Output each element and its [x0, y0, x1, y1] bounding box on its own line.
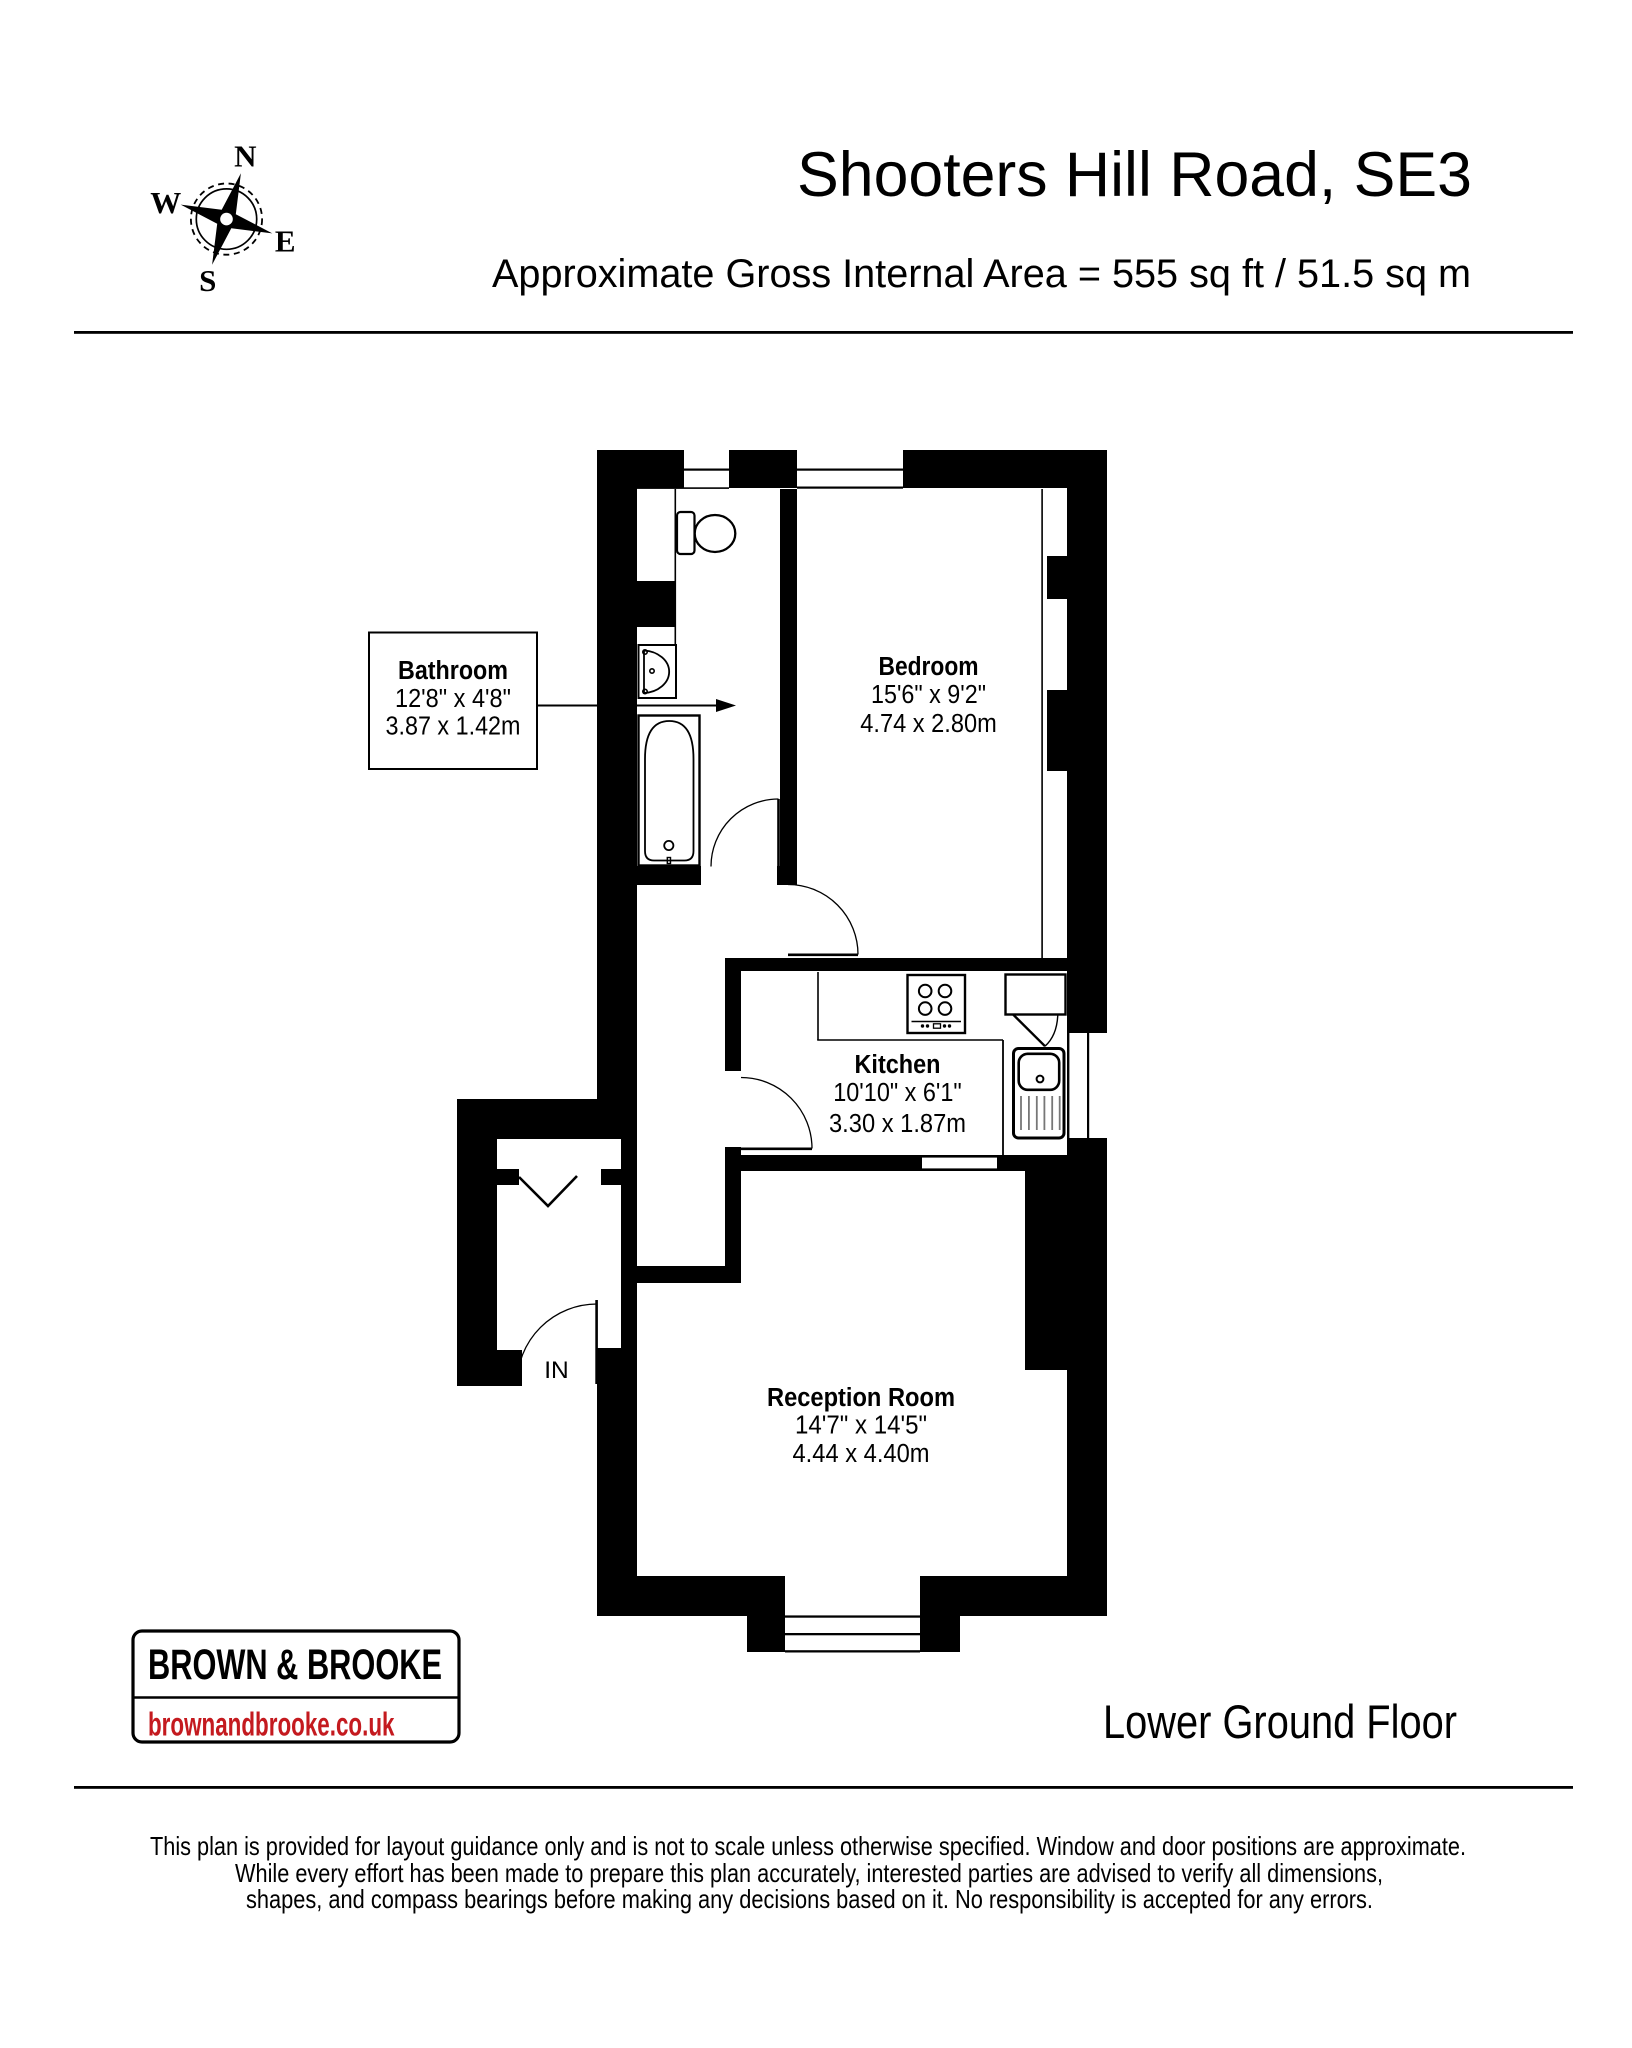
svg-text:Approximate Gross Internal Are: Approximate Gross Internal Area = 555 sq… — [492, 252, 1471, 296]
svg-text:Reception Room: Reception Room — [767, 1384, 955, 1412]
svg-text:brownandbrooke.co.uk: brownandbrooke.co.uk — [148, 1707, 395, 1744]
svg-text:Shooters Hill Road, SE3: Shooters Hill Road, SE3 — [797, 140, 1472, 210]
svg-text:shapes, and compass bearings b: shapes, and compass bearings before maki… — [246, 1884, 1373, 1914]
svg-text:Kitchen: Kitchen — [855, 1051, 941, 1079]
svg-text:4.44 x 4.40m: 4.44 x 4.40m — [793, 1440, 930, 1468]
svg-text:IN: IN — [544, 1357, 569, 1384]
svg-text:Bathroom: Bathroom — [398, 657, 508, 685]
svg-text:12'8" x 4'8": 12'8" x 4'8" — [395, 685, 511, 713]
svg-text:BROWN & BROOKE: BROWN & BROOKE — [148, 1641, 442, 1689]
svg-text:Lower Ground Floor: Lower Ground Floor — [1103, 1695, 1457, 1748]
svg-text:W: W — [150, 185, 181, 220]
svg-text:S: S — [199, 263, 216, 298]
svg-text:14'7" x 14'5": 14'7" x 14'5" — [795, 1412, 927, 1440]
svg-text:This plan is provided for layo: This plan is provided for layout guidanc… — [150, 1831, 1466, 1861]
svg-text:E: E — [275, 223, 296, 258]
svg-text:10'10" x 6'1": 10'10" x 6'1" — [833, 1079, 962, 1107]
svg-text:15'6" x 9'2": 15'6" x 9'2" — [871, 681, 986, 709]
svg-text:3.30 x 1.87m: 3.30 x 1.87m — [829, 1110, 966, 1138]
svg-text:4.74 x 2.80m: 4.74 x 2.80m — [860, 710, 997, 738]
svg-text:N: N — [234, 139, 256, 174]
svg-text:Bedroom: Bedroom — [879, 653, 979, 681]
svg-text:3.87 x 1.42m: 3.87 x 1.42m — [386, 713, 521, 741]
